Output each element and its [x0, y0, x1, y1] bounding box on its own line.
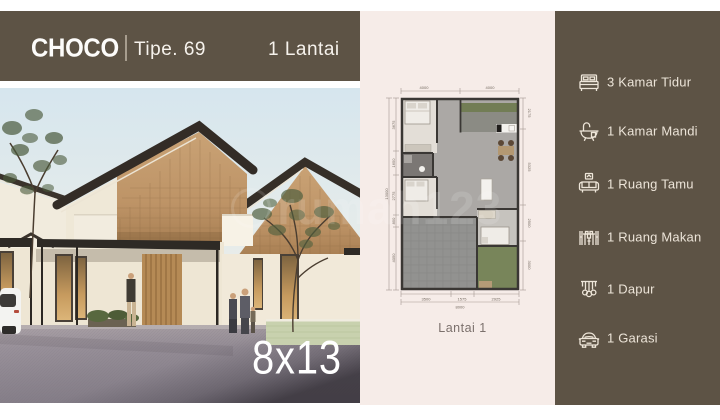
- svg-text:4000: 4000: [420, 85, 430, 90]
- svg-text:5325: 5325: [527, 163, 532, 173]
- svg-text:2175: 2175: [527, 109, 532, 119]
- svg-text:1575: 1575: [458, 297, 468, 302]
- svg-text:3000: 3000: [527, 261, 532, 271]
- svg-text:3675: 3675: [391, 120, 396, 130]
- svg-text:8000: 8000: [456, 305, 466, 310]
- svg-text:2500: 2500: [527, 219, 532, 229]
- svg-text:4000: 4000: [486, 85, 496, 90]
- svg-text:3500: 3500: [422, 297, 432, 302]
- svg-text:2925: 2925: [492, 297, 502, 302]
- svg-text:1650: 1650: [391, 158, 396, 168]
- svg-text:4050: 4050: [391, 253, 396, 263]
- svg-text:8x13: 8x13: [252, 331, 342, 384]
